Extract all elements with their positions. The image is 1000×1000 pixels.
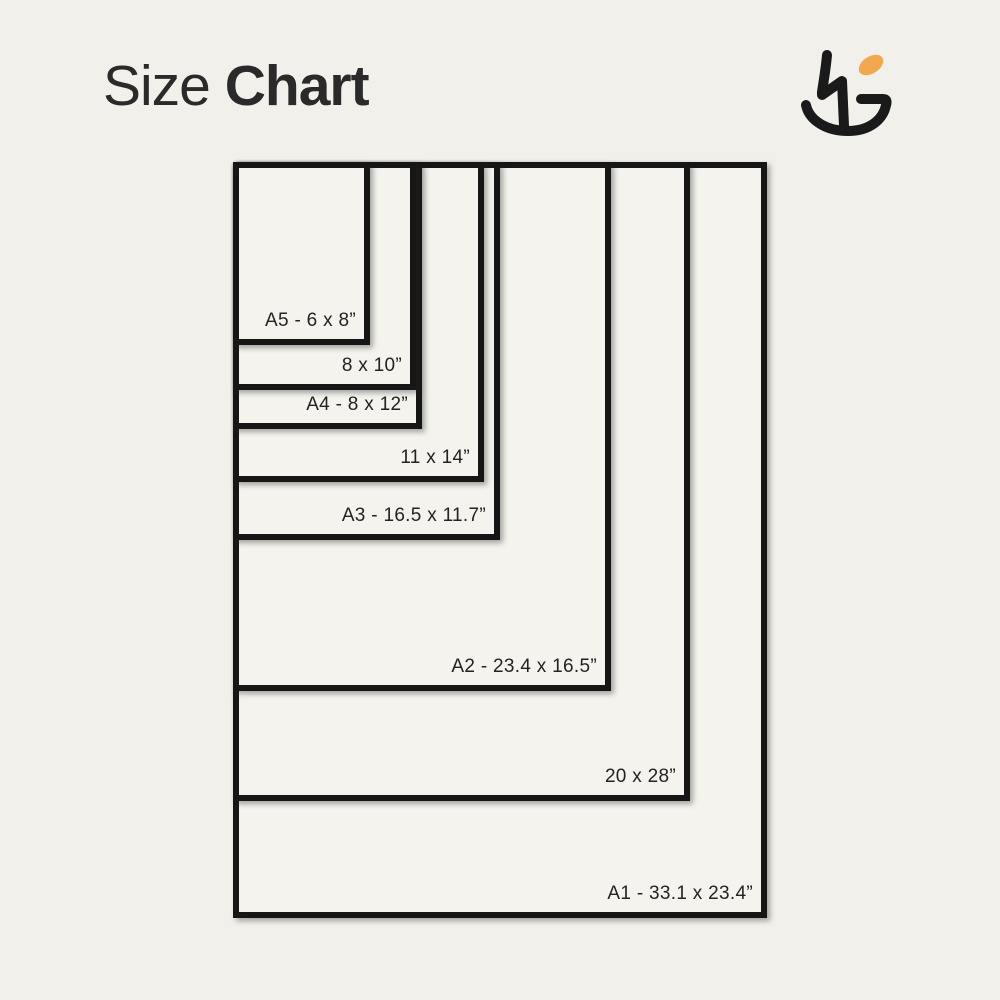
size-label-a5: A5 - 6 x 8” xyxy=(265,310,356,332)
size-label-11x14: 11 x 14” xyxy=(400,447,470,469)
logo-accent-dot-icon xyxy=(855,51,887,80)
size-label-20x28: 20 x 28” xyxy=(605,766,676,788)
size-label-a3: A3 - 16.5 x 11.7” xyxy=(342,505,486,527)
title-regular: Size xyxy=(103,54,210,118)
page-title: Size Chart xyxy=(103,57,369,117)
size-rect-a5: A5 - 6 x 8” xyxy=(233,162,370,345)
brand-logo-icon xyxy=(797,40,909,138)
size-label-a4: A4 - 8 x 12” xyxy=(306,394,408,416)
size-label-a1: A1 - 33.1 x 23.4” xyxy=(607,883,753,905)
page-canvas: Size Chart A1 - 33.1 x 23.4”20 x 28”A2 -… xyxy=(0,0,1000,1000)
title-bold: Chart xyxy=(225,54,369,118)
size-label-a2: A2 - 23.4 x 16.5” xyxy=(451,656,597,678)
size-label-8x10: 8 x 10” xyxy=(342,355,402,377)
